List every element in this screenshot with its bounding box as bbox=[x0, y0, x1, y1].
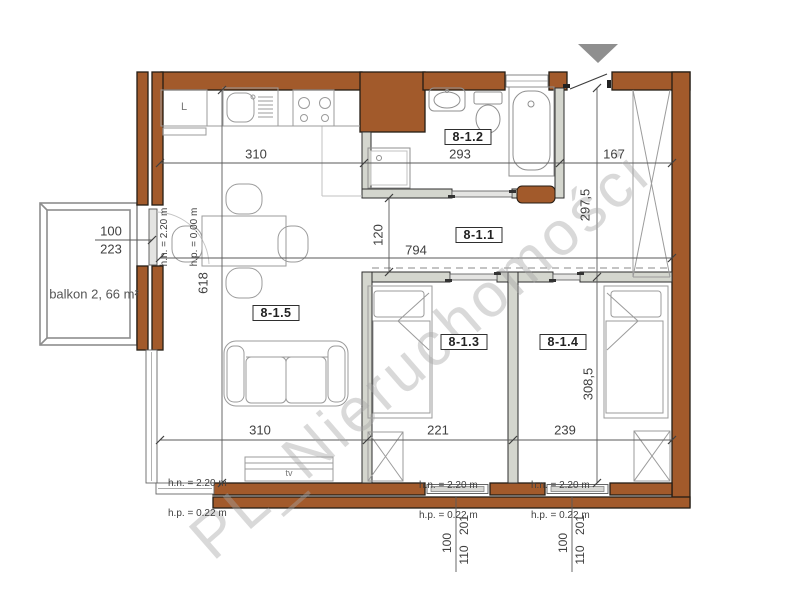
entrance-marker-icon bbox=[578, 44, 618, 63]
wall-segment bbox=[508, 272, 518, 483]
height-note-living: h.n. = 2.20 m h.p. = 0.22 m bbox=[168, 459, 227, 529]
room-label-bedroom1: 8-1.3 bbox=[441, 334, 488, 350]
bedroom2-sliding-door bbox=[549, 272, 584, 282]
dim-kitchen-width: 310 bbox=[245, 147, 267, 162]
bed-icon bbox=[604, 286, 668, 418]
height-note-line: h.p. = 0.22 m bbox=[419, 511, 478, 521]
room-label-bedroom2: 8-1.4 bbox=[540, 334, 587, 350]
bed-icon bbox=[368, 286, 432, 418]
tv-label: tv bbox=[285, 468, 292, 478]
height-note-line: h.n. = 2.20 m bbox=[160, 208, 170, 267]
bathroom-sliding-door bbox=[448, 190, 516, 198]
window1-height: 110 bbox=[457, 545, 471, 564]
bedroom1-sliding-door bbox=[445, 272, 501, 282]
sofa-icon bbox=[224, 341, 348, 406]
room-label-living: 8-1.5 bbox=[253, 305, 300, 321]
floor-plan: PL_Nieruchomości 8-1.2 8-1.1 8-1.5 8-1.3… bbox=[0, 0, 800, 600]
dim-interior-width: 794 bbox=[405, 243, 427, 258]
height-note-line: h.n. = 2.20 m bbox=[531, 481, 590, 491]
hall-cabinet-icon bbox=[517, 186, 555, 203]
dim-bedroom1-width: 221 bbox=[427, 423, 449, 438]
room-label-bathroom: 8-1.2 bbox=[445, 129, 492, 145]
window2-width: 100 bbox=[556, 533, 570, 553]
dim-living-width: 310 bbox=[249, 423, 271, 438]
chair-icon bbox=[226, 268, 262, 298]
window2-height: 110 bbox=[573, 545, 587, 564]
wall-segment bbox=[610, 483, 672, 495]
wall-segment bbox=[161, 72, 362, 90]
dim-bedroom2-width: 239 bbox=[554, 423, 576, 438]
wall-segment bbox=[518, 272, 553, 282]
dim-balcony-door-width: 100 bbox=[100, 224, 122, 239]
height-note-bedroom1: h.n. = 2.20 m h.p. = 0.22 m bbox=[419, 461, 478, 531]
dim-bathroom-width: 293 bbox=[449, 147, 471, 162]
chair-icon bbox=[226, 184, 262, 214]
wall-segment bbox=[137, 72, 148, 205]
dim-balcony-door-height: 223 bbox=[100, 242, 122, 257]
exterior-walls bbox=[137, 72, 690, 508]
height-note-balcony-door: h.n. = 2.20 m h.p. = 0.00 m bbox=[140, 208, 210, 267]
entrance-door bbox=[563, 74, 611, 89]
wardrobe-icon bbox=[368, 432, 403, 481]
wall-segment bbox=[362, 272, 450, 282]
dim-bedrooms-height: 308,5 bbox=[581, 368, 596, 401]
window1-width: 100 bbox=[440, 533, 454, 553]
wall-segment bbox=[362, 189, 452, 198]
dim-entry-height: 297,5 bbox=[578, 189, 593, 222]
height-note-line: h.p. = 0.22 m bbox=[531, 511, 590, 521]
wall-segment bbox=[672, 72, 690, 507]
kitchen-sink-icon bbox=[223, 88, 278, 126]
washbasin-icon bbox=[429, 88, 465, 111]
balcony-outline bbox=[40, 203, 137, 345]
balcony-label: balkon 2, 66 m² bbox=[49, 287, 139, 302]
dim-entry-width: 167 bbox=[603, 147, 625, 162]
dim-hall-height: 120 bbox=[371, 224, 386, 246]
wall-segment bbox=[423, 72, 505, 90]
washing-machine-icon bbox=[368, 148, 410, 188]
height-note-bedroom2: h.n. = 2.20 m h.p. = 0.22 m bbox=[531, 461, 590, 531]
wall-segment bbox=[555, 88, 564, 198]
room-label-hall: 8-1.1 bbox=[456, 227, 503, 243]
bathroom-window bbox=[506, 75, 548, 87]
dim-living-height: 618 bbox=[196, 272, 211, 294]
chair-icon bbox=[278, 226, 308, 262]
wall-segment bbox=[362, 272, 372, 483]
wall-segment bbox=[213, 483, 425, 495]
toilet-icon bbox=[474, 92, 502, 133]
height-note-line: h.n. = 2.20 m bbox=[419, 481, 478, 491]
entry-wardrobe-icon bbox=[633, 90, 670, 277]
height-note-line: h.p. = 0.22 m bbox=[168, 509, 227, 519]
wall-segment bbox=[137, 266, 148, 350]
height-note-line: h.n. = 2.20 m bbox=[168, 479, 227, 489]
height-note-line: h.p. = 0.00 m bbox=[190, 208, 200, 267]
stove-icon bbox=[293, 90, 334, 126]
fridge-label: L bbox=[181, 101, 187, 113]
wall-segment bbox=[360, 72, 425, 132]
wardrobe-icon bbox=[634, 431, 670, 481]
wall-segment bbox=[152, 266, 163, 350]
